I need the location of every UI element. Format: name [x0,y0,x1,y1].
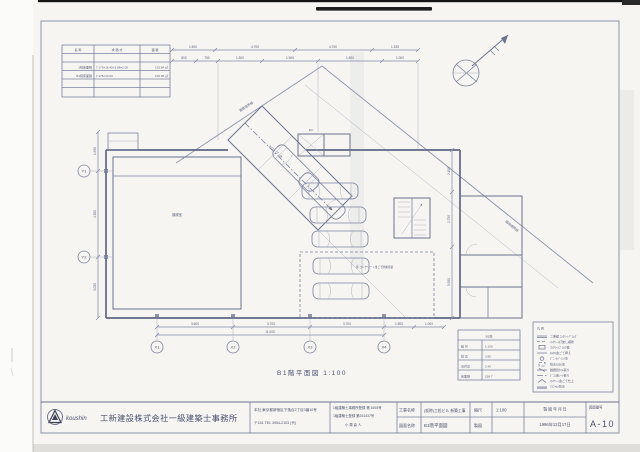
registration-line: 1級建築士登録 第261437号 [333,413,375,418]
dim-total-label: 11.000 [265,330,275,334]
area-row-formula: 7.175×14.00 [96,74,113,78]
architect-name: 小 栗 喜 人 [345,422,362,427]
grid-label-y2: Y2 [82,255,88,260]
scanned-architectural-drawing: 名 称 求 積 式 面 積 1階床面積 7.175×16.40+3.88×2.0… [0,0,640,452]
data-row-value: 2.40 [485,365,491,369]
dim-label: 750 [204,56,210,60]
dim-label: 1.500 [346,56,354,60]
dim-label: 4.750 [329,45,337,49]
dim-label: 1.950 [93,147,97,155]
area-table-header-area: 面 積 [152,47,159,52]
data-row-label: 縮 尺 [461,344,468,349]
area-table-header-formula: 求 積 式 [112,47,123,52]
data-row-value: 3.85 [485,355,491,359]
area-row-formula: 7.175×16.40+3.88×2.05 [96,66,128,70]
registration-line: 1級建築士事務所登録 第 1693号 [333,405,382,410]
dim-label: 2.750 [447,215,451,223]
scale-label: 縮尺 [474,407,482,413]
data-row-value: 1:100 [485,345,493,349]
area-row-name: B1階床面積 [76,73,92,78]
data-row-label: 階 高 [461,354,468,359]
area-row-area: 100.45 ㎡ [155,73,168,78]
dim-label: 1.500 [236,56,244,60]
machine-room-label: 機械室 [172,212,182,217]
data-row-label: 床面積 [461,374,470,379]
dim-label: 3.700 [343,322,351,326]
dim-label: 1.335 [391,45,399,49]
grid-label-y1: Y1 [82,169,88,174]
grid-label-x1: X1 [155,345,161,350]
legend-item: ﾋﾞﾆｰﾙﾍﾟｲﾝﾄ塗 [550,356,568,361]
project-value: (仮称)工松ビル 新築工事 [424,408,466,413]
ev-label: EV [309,128,313,132]
legend-item: ﾓﾙﾀﾙ金ごて押え [550,350,571,355]
area-table-header-name: 名 称 [75,47,82,52]
dim-label: 1.905 [286,56,294,60]
dim-label: 800 [181,56,187,60]
date-label: 製 図 年 月 日 [543,407,566,412]
drawing-title-value: B1階平面図 [424,422,448,429]
data-row-value: 158.7 [485,375,493,379]
floor-note: 床:コンクリート金ごて防塵塗装 [356,265,393,269]
legend-item: ｺﾝｸﾘｰﾄ打放し補修 [550,339,574,344]
legend-title: 凡 例 [537,326,544,331]
dim-label: 2.100 [447,167,451,175]
legend-item: ｺﾝｸﾘｰﾄ金ごて仕上 [550,378,574,383]
dim-label: 3.050 [93,283,97,291]
company-phone: 〒161 TEL 3954-2103 (代) [254,420,296,425]
dim-label: 3.700 [267,322,275,326]
dim-label: 4.300 [93,210,97,218]
legend-item: ｺﾝｸﾘｰﾄﾌﾞﾛｯｸ積 [550,345,570,350]
dim-label: 3.550 [447,278,451,286]
legend-item: ｱｽﾌｧﾙﾄ防水 [550,384,565,389]
legend-item: ﾋﾞﾆﾙ床ｼｰﾄ張り [550,373,570,378]
logo-text: koushin [66,416,87,422]
data-row-label: 天井高 [461,364,470,369]
company-name: 工新建設株式会社一級建築士事務所 [100,413,237,423]
scale-value: 1:100 [496,408,507,413]
draft-label: 製図 [474,422,482,428]
data-table-title: B1階 [486,334,493,339]
dim-label: 1.000 [425,322,433,326]
legend-item: 防水ﾓﾙﾀﾙ塗 [550,361,565,366]
grid-label-x4: X4 [382,345,388,350]
legend-item: 二重壁 ｺﾝｸﾘｰﾄﾌﾞﾛｯｸ [550,334,577,339]
dim-label: 1.500 [189,45,197,49]
grid-label-x2: X2 [231,345,237,350]
company-address: 本社 東京都新宿区下落合2丁目3番10号 [254,407,317,412]
legend-item: 磁器質ﾀｲﾙ張り [550,367,570,372]
area-row-name: 1階床面積 [78,65,92,70]
date-value: 1996年12月17日 [539,421,570,428]
dim-label: 4.700 [251,45,259,49]
area-row-area: 125.64 ㎡ [155,65,168,70]
drawing-number-label: 図面番号 [589,405,603,410]
dim-label: 3.600 [191,322,199,326]
drawing-number-value: A-10 [590,419,615,429]
dim-label: 1.500 [395,322,403,326]
drawing-title-label: 図面名称 [399,422,415,428]
dim-label: 1.000 [396,56,404,60]
drawing-caption: B1階平面図 1:100 [277,368,347,377]
project-label: 工事名称 [399,407,415,413]
grid-label-x3: X3 [308,345,314,350]
